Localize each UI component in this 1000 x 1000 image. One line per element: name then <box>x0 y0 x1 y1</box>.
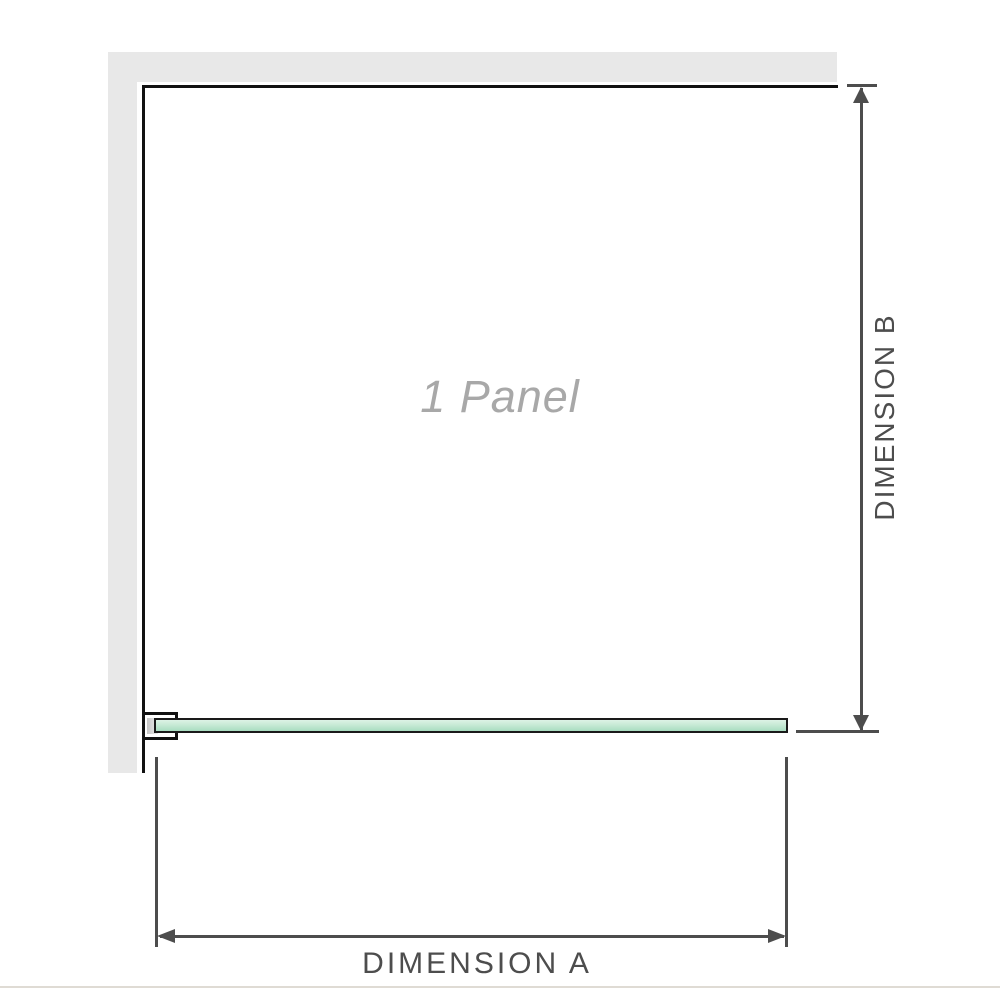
wall-left <box>108 52 137 773</box>
wall-top <box>108 52 837 82</box>
dimension-b-tick-bottom <box>796 730 879 733</box>
arrow-left-icon <box>157 929 175 943</box>
dimension-a-extension-right <box>785 757 788 947</box>
dimension-a-line <box>160 935 784 938</box>
arrow-down-icon <box>853 715 869 731</box>
panel-count-label: 1 Panel <box>420 371 580 423</box>
dimension-a-extension-left <box>155 757 158 947</box>
dimension-b-line <box>860 88 863 731</box>
dimension-b-label: DIMENSION B <box>869 313 901 520</box>
panel-dimension-diagram: 1 Panel DIMENSION B DIMENSION A <box>0 0 1000 1000</box>
arrow-up-icon <box>853 87 869 103</box>
dimension-a-label: DIMENSION A <box>362 947 592 981</box>
wall-edge-top-line <box>142 85 838 88</box>
wall-edge-left-line <box>142 85 145 773</box>
page-divider-line <box>0 986 1000 988</box>
glass-panel <box>154 718 788 733</box>
arrow-right-icon <box>768 929 786 943</box>
